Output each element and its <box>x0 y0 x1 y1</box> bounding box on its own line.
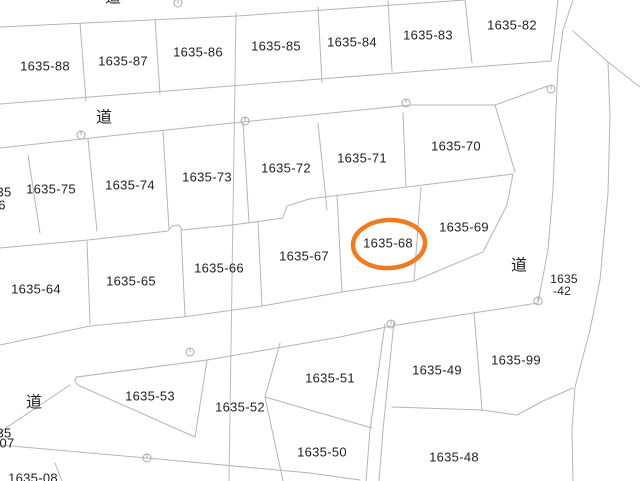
parcel-label-163584: 1635-84 <box>327 35 377 50</box>
parcel-label-163565: 1635-65 <box>106 274 156 289</box>
road-label: 道 <box>511 257 527 275</box>
parcel-label-163548: 1635-48 <box>429 450 479 465</box>
parcel-label-163583: 1635-83 <box>403 28 453 43</box>
parcel-label-163586: 1635-86 <box>173 45 223 60</box>
parcel-label-163582: 1635-82 <box>487 18 537 33</box>
road-label: 道 <box>105 0 121 7</box>
parcel-label-163568: 1635-68 <box>363 236 413 251</box>
parcel-label-163585: 1635-85 <box>251 39 301 54</box>
survey-marker-icon <box>534 297 542 305</box>
parcel-label-163599: 1635-99 <box>491 353 541 368</box>
parcel-label-163551: 1635-51 <box>305 371 355 386</box>
parcel-label-163552: 1635-52 <box>215 400 265 415</box>
parcel-label-163553: 1635-53 <box>125 389 175 404</box>
parcel-label-163572: 1635-72 <box>261 161 311 176</box>
parcel-label-163575: 1635-75 <box>26 182 76 197</box>
parcel-label-163588: 1635-88 <box>20 59 70 74</box>
parcel-label-163549: 1635-49 <box>412 363 462 378</box>
cadastral-map[interactable]: 1635-881635-871635-861635-851635-841635-… <box>0 0 640 481</box>
parcel-label-42: -42 <box>553 284 571 298</box>
parcel-label-163567: 1635-67 <box>279 249 329 264</box>
parcel-label-163571: 1635-71 <box>337 151 387 166</box>
parcel-label-163574: 1635-74 <box>105 178 155 193</box>
survey-marker-icon <box>174 0 182 7</box>
parcel-label-163573: 1635-73 <box>182 170 232 185</box>
parcel-label-163564: 1635-64 <box>11 282 61 297</box>
parcel-label-163570: 1635-70 <box>431 139 481 154</box>
road-label: 道 <box>26 394 42 412</box>
survey-marker-icon <box>186 348 194 356</box>
parcel-label-163550: 1635-50 <box>297 445 347 460</box>
road-label: 道 <box>96 109 112 127</box>
boundary-lines <box>0 0 640 481</box>
partial-parcel-label: 07 <box>0 436 15 451</box>
parcel-label-163587: 1635-87 <box>98 54 148 69</box>
partial-parcel-label: 6 <box>0 198 6 213</box>
parcel-label-163566: 1635-66 <box>194 261 244 276</box>
survey-marker-icon <box>547 85 555 93</box>
cadastral-map-view[interactable]: 1635-881635-871635-861635-851635-841635-… <box>0 0 640 481</box>
partial-parcel-label: 1635-08 <box>8 471 58 481</box>
survey-marker-icon <box>77 131 85 139</box>
parcel-label-163569: 1635-69 <box>439 220 489 235</box>
